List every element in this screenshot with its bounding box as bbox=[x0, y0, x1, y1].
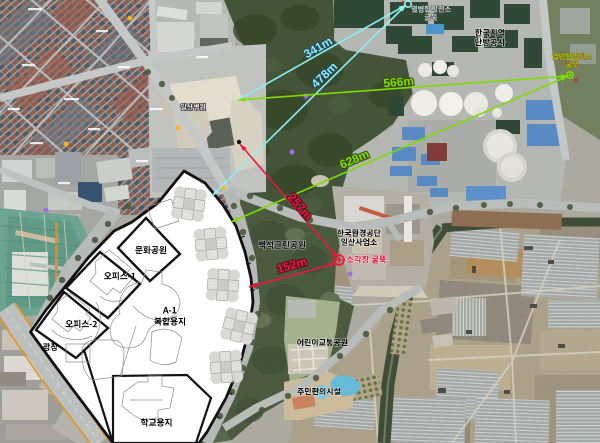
svg-text:566m: 566m bbox=[383, 74, 415, 91]
